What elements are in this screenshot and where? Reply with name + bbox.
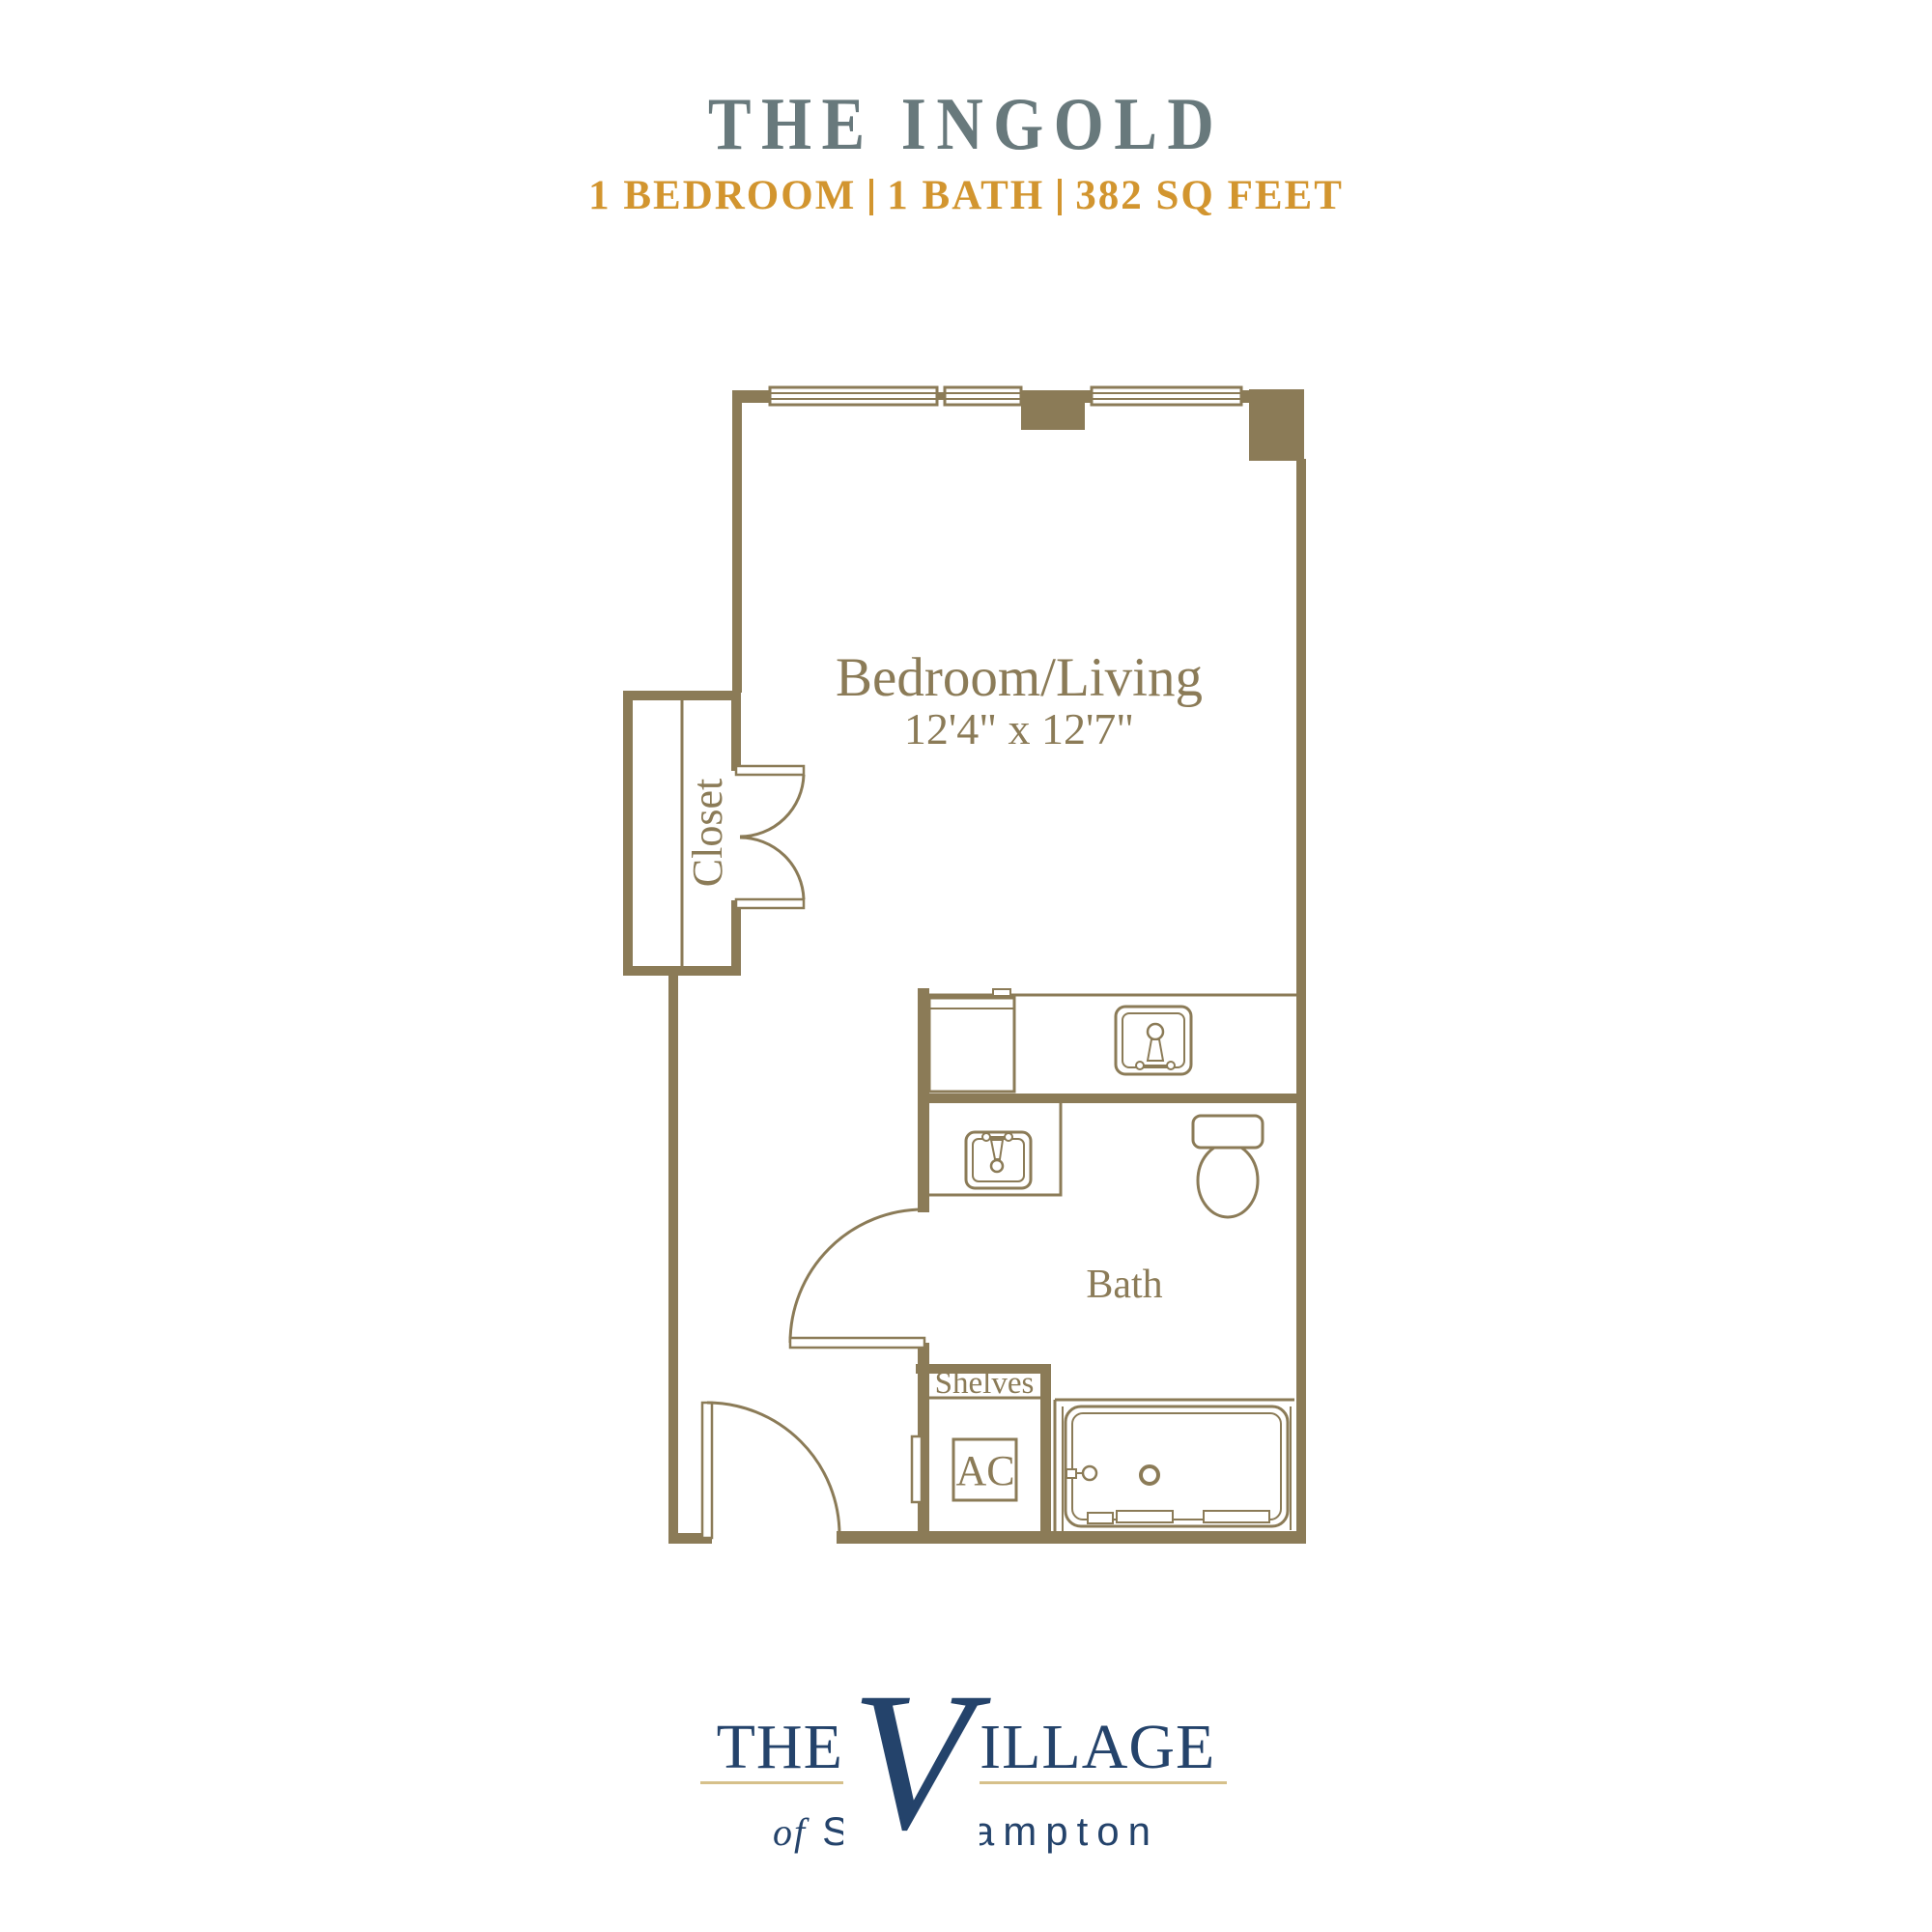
bath-door-swing	[790, 1209, 923, 1343]
toilet-bowl	[1198, 1144, 1258, 1217]
spec-area: 382 SQ FEET	[1075, 173, 1344, 218]
page-title: THE INGOLD	[126, 81, 1806, 167]
floor-plan-drawing: Bedroom/Living 12'4" x 12'7" Bath Closet…	[599, 367, 1333, 1565]
spec-bedrooms: 1 BEDROOM	[588, 173, 856, 218]
entry-door-swing	[707, 1403, 839, 1535]
shelves-label: Shelves	[935, 1366, 1035, 1401]
bathroom	[790, 1103, 1263, 1348]
logo-word-illage: ILLAGE	[980, 1716, 1215, 1779]
wall-right	[1296, 459, 1306, 1544]
wall-left-upper	[732, 390, 742, 693]
bathtub	[1055, 1400, 1294, 1533]
closet-door-leaf	[736, 766, 804, 775]
kitchen-faucet	[1148, 1024, 1163, 1039]
closet-door-swing	[740, 838, 804, 899]
entry-door	[702, 1403, 839, 1538]
window	[1092, 387, 1241, 405]
windows	[770, 387, 1241, 405]
entry-door-leaf	[702, 1403, 712, 1538]
fridge-tab	[993, 989, 1010, 996]
ac-closet-door	[912, 1436, 922, 1502]
floor-plan-page: THE INGOLD 1 BEDROOM1 BATH382 SQ FEET	[0, 0, 1932, 1932]
wall-bottom	[837, 1531, 1306, 1544]
logo-script-v: V	[843, 1673, 980, 1852]
ac-label: AC	[955, 1447, 1014, 1494]
wall-bath-top	[918, 1094, 1296, 1103]
bedroom-label: Bedroom/Living	[836, 647, 1203, 708]
plan-specs: 1 BEDROOM1 BATH382 SQ FEET	[0, 175, 1932, 216]
kitchenette	[929, 989, 1296, 1092]
logo-wordmark: THE V ILLAGE	[0, 1613, 1932, 1792]
spec-baths: 1 BATH	[887, 173, 1044, 218]
fridge	[929, 998, 1014, 1092]
community-logo: THE V ILLAGE ofSouthampton	[0, 1613, 1932, 1855]
bath-door-leaf	[790, 1338, 924, 1348]
logo-tagline-of: of	[773, 1810, 807, 1854]
spec-divider	[1058, 179, 1062, 215]
bedroom-dimensions: 12'4" x 12'7"	[904, 704, 1134, 753]
closet-door-swing	[740, 775, 804, 837]
bath-label: Bath	[1086, 1263, 1162, 1307]
tub-drain	[1141, 1466, 1158, 1484]
wall-column-top-right	[1249, 389, 1304, 461]
window	[770, 387, 937, 405]
vanity-faucet	[991, 1160, 1003, 1172]
wall-column-top-center	[1021, 390, 1085, 430]
header: THE INGOLD 1 BEDROOM1 BATH382 SQ FEET	[0, 0, 1932, 216]
tub-faucet	[1066, 1469, 1076, 1478]
spec-divider	[869, 179, 873, 215]
wall-hall-left	[668, 974, 678, 1544]
closet-label: Closet	[684, 779, 731, 887]
toilet-tank	[1193, 1116, 1263, 1148]
logo-word-the: THE	[717, 1716, 843, 1779]
window	[945, 387, 1021, 405]
closet-door-leaf	[736, 899, 804, 908]
